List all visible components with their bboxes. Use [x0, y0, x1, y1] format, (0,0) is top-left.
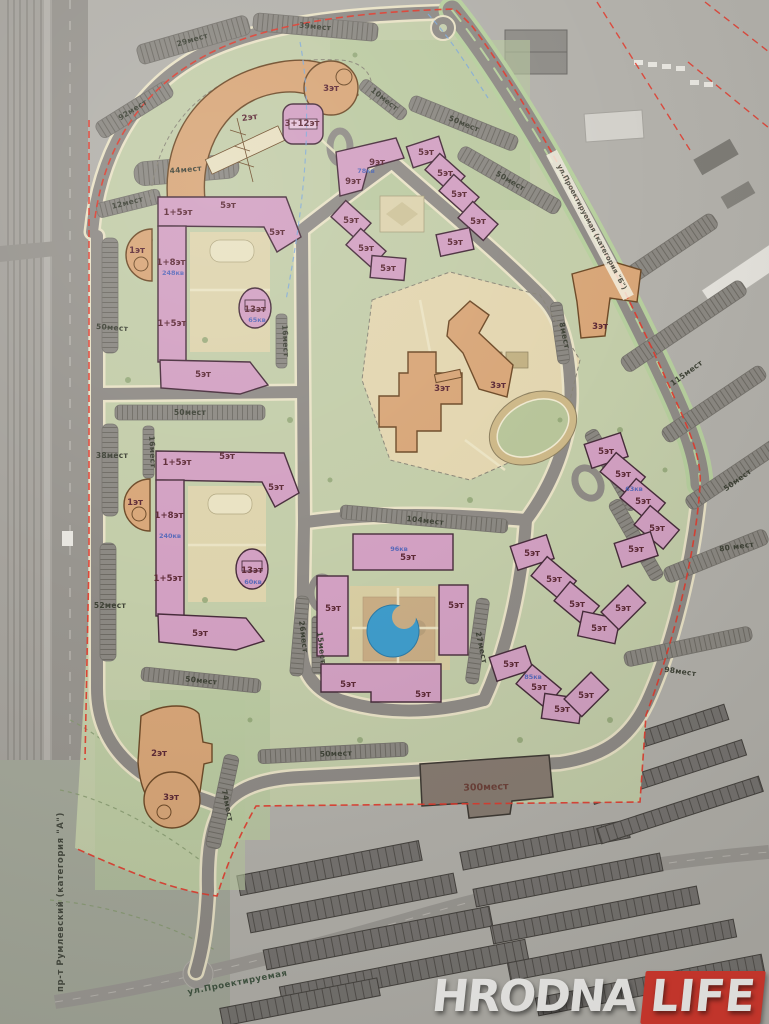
floor-label: 5эт	[591, 624, 607, 634]
floor-label: 5эт	[195, 370, 211, 380]
floor-label: 5эт	[524, 549, 540, 559]
floor-label: 5эт	[615, 604, 631, 614]
floor-label: 5эт	[635, 497, 651, 507]
floor-label: 5эт	[447, 238, 463, 248]
floor-label: 13эт	[241, 566, 263, 576]
watermark-word-hrodna: HRODNA	[429, 971, 638, 1022]
floor-label: 5эт	[192, 629, 208, 639]
floor-label: 3эт	[434, 384, 450, 394]
floor-label: 5эт	[340, 680, 356, 690]
floor-label: 2эт	[151, 749, 167, 759]
floor-label: 13эт	[244, 305, 266, 315]
floor-label: 5эт	[268, 483, 284, 493]
floor-label: 5эт	[503, 660, 519, 670]
floor-label: 5эт	[649, 524, 665, 534]
floor-label: 1+5эт	[163, 458, 192, 468]
apartment-label: 60кв	[244, 578, 262, 586]
floor-label: 3+12эт	[285, 119, 320, 129]
floor-label: 5эт	[219, 452, 235, 462]
apartment-label: 85кв	[524, 673, 542, 681]
apartment-label: 248кв	[162, 269, 184, 277]
floor-label: 5эт	[554, 705, 570, 715]
parking-label: 16мест	[147, 436, 158, 469]
floor-label: 3эт	[592, 322, 608, 332]
floor-label: 5эт	[598, 447, 614, 457]
floor-label: 5эт	[343, 216, 359, 226]
parking-label: 38мест	[96, 451, 129, 460]
floor-label: 5эт	[358, 244, 374, 254]
garage-capacity-label: 300мест	[463, 781, 509, 794]
floor-label: 5эт	[569, 600, 585, 610]
floor-label: 5эт	[380, 264, 396, 274]
floor-label: 1эт	[129, 246, 145, 256]
floor-label: 1+5эт	[154, 574, 183, 584]
floor-label: 5эт	[437, 169, 453, 179]
floor-label: 9эт	[345, 177, 361, 187]
floor-label: 1эт	[127, 498, 143, 508]
watermark-hrodna-life: HRODNALIFE	[429, 971, 766, 1024]
parking-label: 52мест	[94, 601, 127, 610]
watermark-word-life: LIFE	[640, 971, 766, 1024]
floor-label: 5эт	[628, 545, 644, 555]
apartment-label: 63кв	[625, 485, 643, 493]
floor-label: 5эт	[546, 575, 562, 585]
floor-label: 5эт	[615, 470, 631, 480]
floor-label: 1+5эт	[164, 208, 193, 218]
master-plan-photo: пр-т Румлевский (категория "А") ул.Проек…	[0, 0, 769, 1024]
floor-label: 5эт	[470, 217, 486, 227]
apartment-label: 65кв	[248, 316, 266, 324]
floor-label: 1+8эт	[155, 511, 184, 521]
floor-label: 3эт	[323, 84, 339, 94]
parking-label: 16мест	[280, 325, 291, 358]
parking-label: 50мест	[320, 748, 353, 758]
floor-label: 5эт	[418, 148, 434, 158]
floor-label: 1+5эт	[158, 319, 187, 329]
pond	[367, 605, 419, 657]
floor-label: 5эт	[531, 683, 547, 693]
floor-label: 5эт	[220, 201, 236, 211]
floor-label: 3эт	[163, 793, 179, 803]
floor-label: 1+8эт	[157, 258, 186, 268]
apartment-label: 96кв	[390, 545, 408, 553]
floor-label: 3эт	[490, 381, 506, 391]
floor-label: 5эт	[269, 228, 285, 238]
floor-label: 5эт	[325, 604, 341, 614]
floor-label: 5эт	[415, 690, 431, 700]
floor-label: 5эт	[451, 190, 467, 200]
parking-label: 50мест	[174, 408, 207, 417]
floor-label: 5эт	[448, 601, 464, 611]
apartment-label: 78кв	[357, 167, 375, 175]
site-plan-svg: пр-т Румлевский (категория "А") ул.Проек…	[0, 0, 769, 1024]
floor-label: 5эт	[400, 553, 416, 563]
street-label-prospekt: пр-т Румлевский (категория "А")	[56, 812, 66, 992]
apartment-label: 240кв	[159, 532, 181, 540]
floor-label: 5эт	[578, 691, 594, 701]
